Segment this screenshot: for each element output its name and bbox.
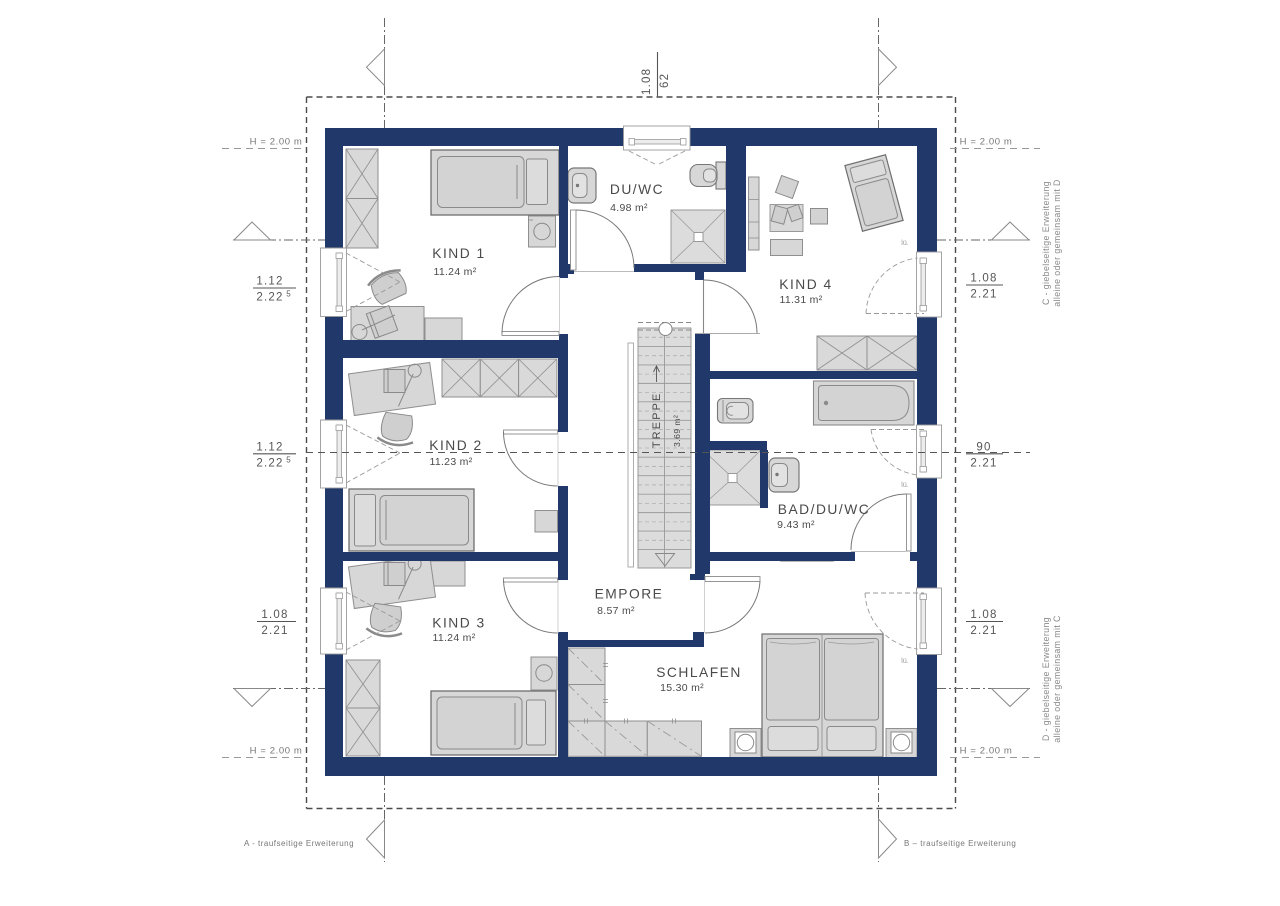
svg-text:KIND 3: KIND 3 — [432, 616, 485, 631]
svg-text:DU/WC: DU/WC — [610, 182, 664, 197]
svg-text:90: 90 — [976, 441, 991, 453]
svg-text:alleine oder gemeinsam mit C: alleine oder gemeinsam mit C — [1052, 615, 1062, 743]
svg-text:62: 62 — [659, 73, 671, 88]
svg-text:11.23 m²: 11.23 m² — [429, 456, 472, 468]
svg-text:1.08: 1.08 — [970, 609, 997, 621]
svg-text:lü.: lü. — [901, 240, 908, 247]
svg-text:9.43 m²: 9.43 m² — [777, 519, 815, 531]
svg-text:C - giebelseitige Erweiterung: C - giebelseitige Erweiterung — [1041, 181, 1051, 305]
svg-text:H = 2.00 m: H = 2.00 m — [960, 746, 1013, 757]
svg-text:1.08: 1.08 — [641, 68, 653, 95]
svg-text:TREPPE: TREPPE — [651, 392, 663, 448]
svg-text:1.08: 1.08 — [970, 273, 997, 285]
svg-text:2.21: 2.21 — [970, 289, 997, 301]
svg-text:BAD/DU/WC: BAD/DU/WC — [778, 502, 870, 517]
svg-text:2.21: 2.21 — [261, 625, 288, 637]
svg-text:H = 2.00 m: H = 2.00 m — [960, 137, 1013, 148]
svg-text:11.24 m²: 11.24 m² — [432, 632, 475, 644]
svg-text:2.21: 2.21 — [970, 625, 997, 637]
svg-text:B – traufseitige Erweiterung: B – traufseitige Erweiterung — [904, 839, 1016, 848]
svg-text:lü.: lü. — [901, 658, 908, 665]
svg-text:lü.: lü. — [901, 482, 908, 489]
svg-text:KIND 1: KIND 1 — [432, 246, 485, 261]
svg-text:5: 5 — [286, 455, 291, 464]
svg-text:KIND 4: KIND 4 — [779, 277, 832, 292]
svg-text:D - giebelseitige Erweiterung: D - giebelseitige Erweiterung — [1041, 617, 1051, 741]
svg-text:5: 5 — [286, 290, 291, 299]
svg-text:11.31 m²: 11.31 m² — [779, 294, 822, 306]
svg-text:2.22: 2.22 — [256, 292, 283, 304]
svg-text:2.22: 2.22 — [256, 457, 283, 469]
svg-text:1.12: 1.12 — [256, 441, 283, 453]
svg-text:H = 2.00 m: H = 2.00 m — [250, 137, 303, 148]
svg-text:3.69 m²: 3.69 m² — [672, 415, 682, 447]
svg-text:SCHLAFEN: SCHLAFEN — [656, 665, 742, 680]
svg-text:4.98 m²: 4.98 m² — [610, 202, 648, 214]
svg-text:alleine oder gemeinsam mit D: alleine oder gemeinsam mit D — [1052, 179, 1062, 307]
svg-text:15.30 m²: 15.30 m² — [660, 682, 704, 694]
svg-text:2.21: 2.21 — [970, 457, 997, 469]
svg-text:KIND 2: KIND 2 — [429, 438, 482, 453]
svg-text:11.24 m²: 11.24 m² — [433, 266, 476, 278]
svg-text:1.12: 1.12 — [256, 276, 283, 288]
svg-text:1.08: 1.08 — [261, 609, 288, 621]
svg-text:A - traufseitige Erweiterung: A - traufseitige Erweiterung — [244, 839, 354, 848]
svg-text:EMPORE: EMPORE — [595, 587, 664, 602]
svg-text:8.57 m²: 8.57 m² — [597, 605, 635, 617]
svg-text:H = 2.00 m: H = 2.00 m — [250, 746, 303, 757]
